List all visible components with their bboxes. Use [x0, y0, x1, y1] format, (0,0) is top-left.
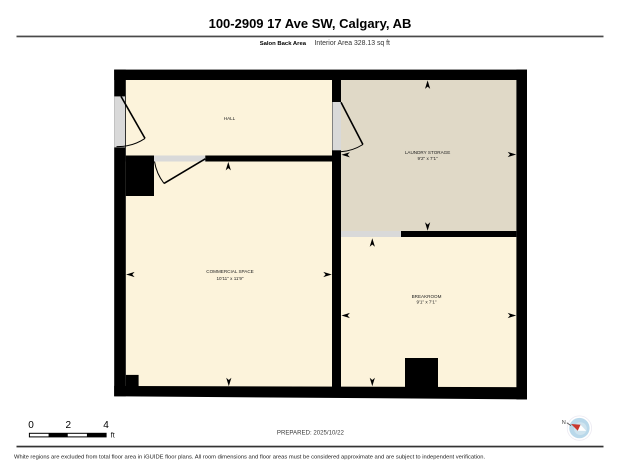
svg-text:Salon Back Area: Salon Back Area: [260, 41, 307, 47]
svg-text:LAUNDRY STORAGE: LAUNDRY STORAGE: [405, 150, 450, 155]
svg-text:BREAKROOM: BREAKROOM: [412, 294, 442, 299]
svg-text:0: 0: [28, 420, 34, 431]
svg-text:PREPARED: 2025/10/22: PREPARED: 2025/10/22: [277, 429, 345, 436]
svg-text:ft: ft: [111, 432, 115, 439]
svg-text:10'11" x 11'9": 10'11" x 11'9": [216, 276, 243, 281]
svg-text:White regions are excluded fro: White regions are excluded from total fl…: [14, 455, 485, 461]
svg-text:N: N: [562, 420, 566, 426]
svg-text:100-2909 17 Ave SW, Calgary, A: 100-2909 17 Ave SW, Calgary, AB: [209, 16, 412, 31]
svg-text:9'1" x 7'1": 9'1" x 7'1": [416, 300, 436, 305]
svg-text:HALL: HALL: [224, 116, 236, 121]
svg-text:COMMERCIAL SPACE: COMMERCIAL SPACE: [206, 269, 253, 274]
svg-text:2: 2: [66, 420, 72, 431]
svg-text:Interior Area 328.13 sq ft: Interior Area 328.13 sq ft: [315, 40, 391, 47]
svg-text:9'2" x 7'1": 9'2" x 7'1": [418, 156, 438, 161]
svg-text:4: 4: [103, 420, 109, 431]
